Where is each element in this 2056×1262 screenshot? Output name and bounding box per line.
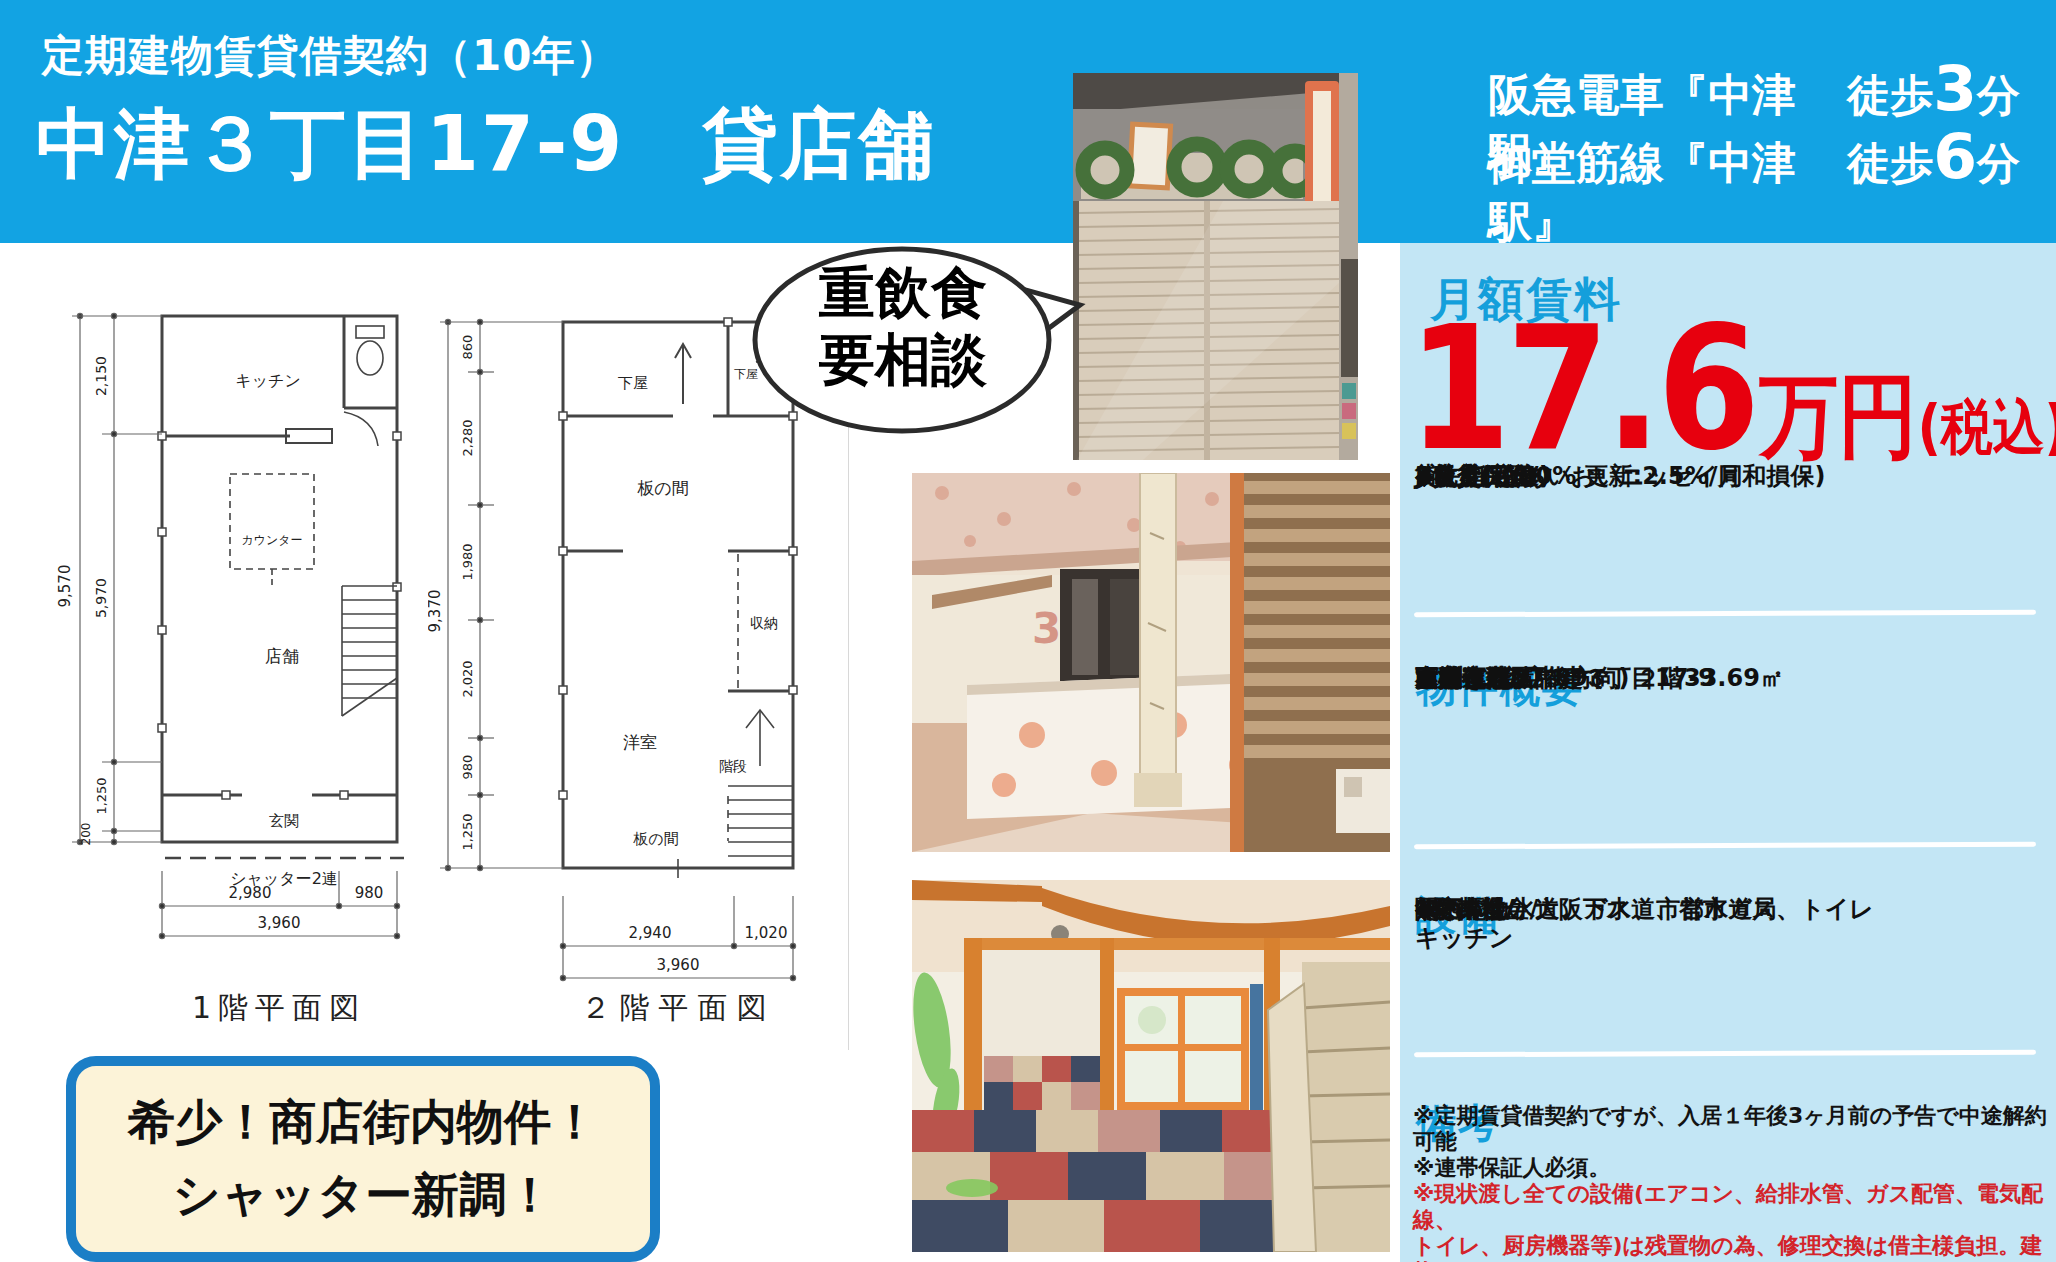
photo-interior-counter: 3 bbox=[912, 473, 1390, 852]
access-walk-time: 徒歩6分 bbox=[1847, 120, 2020, 193]
highlight-box: 希少！商店街内物件！ シャッター新調！ bbox=[66, 1056, 660, 1262]
remarks-block: ※定期賃貸借契約ですが、入居１年後3ヶ月前の予告で中途解約可能 ※連帯保証人必須… bbox=[1413, 1103, 2053, 1262]
remarks-general: ※定期賃貸借契約ですが、入居１年後3ヶ月前の予告で中途解約可能 ※連帯保証人必須… bbox=[1413, 1103, 2053, 1181]
room-label-geya: 下屋 bbox=[618, 374, 648, 392]
highlight-line-1: 希少！商店街内物件！ bbox=[128, 1086, 598, 1159]
highlight-line-2: シャッター新調！ bbox=[173, 1159, 553, 1232]
header-band: 定期建物賃貸借契約（10年） 中津３丁目17-9 貸店舗 阪急電車『中津駅』 徒… bbox=[0, 0, 2056, 243]
access-row-hankyu: 阪急電車『中津駅』 徒歩3分 bbox=[1488, 52, 2020, 112]
floor-plan-first-floor: 9,570 2,150 5,970 1,250 200 キッチン カウンター 店… bbox=[42, 296, 422, 1076]
dim-wall: 200 bbox=[79, 823, 93, 846]
contract-type: 定期建物賃貸借契約（10年） bbox=[42, 28, 618, 84]
section-divider bbox=[1414, 1050, 2036, 1058]
room-label-storage: 収納 bbox=[750, 615, 778, 631]
photo-wall-number: 3 bbox=[1032, 604, 1061, 653]
remarks-condition: ※現状渡し全ての設備(エアコン、給排水管、ガス配管、電気配線、 トイレ、厨房機器… bbox=[1413, 1181, 2053, 1262]
dim-total-height: 9,370 bbox=[428, 590, 444, 633]
dim-front-total: 3,960 bbox=[258, 914, 301, 932]
dim-itanoma: 2,280 bbox=[460, 419, 475, 456]
dim-total-height: 9,570 bbox=[56, 565, 74, 608]
up-arrow-icon bbox=[675, 344, 691, 404]
room-label-stairs: 階段 bbox=[719, 758, 747, 774]
room-label-entrance: 玄関 bbox=[269, 812, 299, 830]
dim-geya: 860 bbox=[460, 335, 475, 360]
dim-front-right: 1,020 bbox=[745, 924, 788, 942]
access-station: 御堂筋線『中津駅』 bbox=[1488, 134, 1847, 252]
dim-shop-depth: 5,970 bbox=[93, 578, 109, 618]
room-label-counter: カウンター bbox=[241, 533, 302, 547]
rent-amount-line: 17.6万円(税込) bbox=[1408, 303, 2056, 479]
station-access: 阪急電車『中津駅』 徒歩3分 御堂筋線『中津駅』 徒歩6分 bbox=[1488, 52, 2020, 188]
speech-bubble: 重飲食 要相談 bbox=[750, 243, 1090, 441]
dim-entrance-depth: 1,250 bbox=[94, 777, 109, 814]
stairs-first-floor bbox=[342, 586, 397, 716]
dim-bottom: 1,250 bbox=[460, 813, 475, 850]
section-divider bbox=[1414, 610, 2036, 618]
dim-front-left: 2,980 bbox=[229, 884, 272, 902]
room-label-itanoma: 板の間 bbox=[637, 478, 688, 498]
section-divider bbox=[1414, 842, 2036, 850]
dim-stair: 980 bbox=[460, 755, 475, 780]
dim-front-right: 980 bbox=[355, 884, 384, 902]
room-label-shop: 店舗 bbox=[265, 646, 299, 666]
photo-storefront bbox=[1073, 73, 1358, 460]
rent-amount: 17.6 bbox=[1408, 303, 1756, 475]
rent-tax-note: (税込) bbox=[1917, 388, 2056, 469]
stairs-second-floor bbox=[728, 710, 793, 856]
rent-unit: 万円 bbox=[1759, 355, 1917, 479]
plan1-title: 1階平面図 bbox=[192, 990, 366, 1025]
info-panel: 月額賃料 17.6万円(税込) ◆礼金/2ヶ月(税込) ◆敷金/1ヶ月(税無) … bbox=[1400, 243, 2056, 1262]
page-title: 中津３丁目17-9 貸店舗 bbox=[36, 94, 936, 197]
dim-front-left: 2,940 bbox=[629, 924, 672, 942]
room-label-itanoma-2: 板の間 bbox=[632, 830, 678, 848]
photo-interior-room bbox=[912, 880, 1390, 1252]
room-label-western-room: 洋室 bbox=[623, 732, 657, 752]
dim-kitchen-depth: 2,150 bbox=[93, 356, 109, 396]
plan2-title: ２階平面図 bbox=[581, 990, 776, 1025]
access-walk-time: 徒歩3分 bbox=[1847, 52, 2020, 125]
dim-mid: 1,980 bbox=[460, 543, 475, 580]
bubble-text: 重飲食 要相談 bbox=[752, 259, 1054, 393]
dim-yoshitsu: 2,020 bbox=[460, 660, 475, 697]
property-flyer: 定期建物賃貸借契約（10年） 中津３丁目17-9 貸店舗 阪急電車『中津駅』 徒… bbox=[0, 0, 2056, 1262]
room-label-kitchen: キッチン bbox=[235, 371, 301, 390]
dim-front-total: 3,960 bbox=[657, 956, 700, 974]
